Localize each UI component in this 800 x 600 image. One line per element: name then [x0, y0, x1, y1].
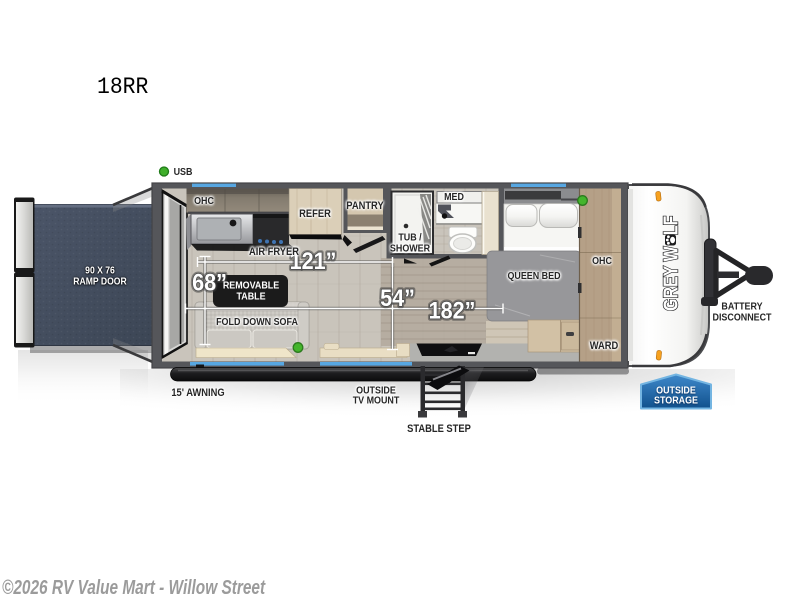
svg-text:182”: 182”: [429, 296, 476, 323]
svg-text:LF: LF: [660, 216, 682, 236]
svg-text:54”: 54”: [380, 284, 415, 311]
svg-text:68”: 68”: [192, 268, 227, 295]
svg-text:GREY W: GREY W: [660, 246, 682, 311]
